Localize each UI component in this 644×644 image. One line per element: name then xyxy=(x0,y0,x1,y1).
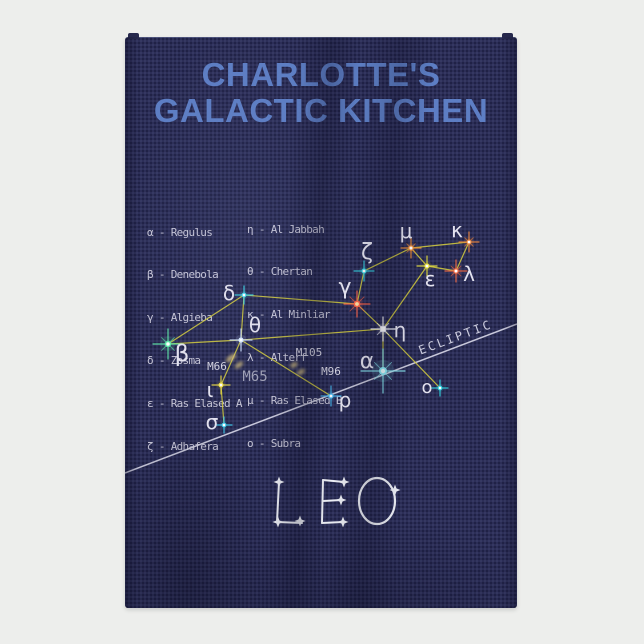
star-label-gamma: γ xyxy=(338,275,351,300)
star-delta xyxy=(235,286,253,304)
messier-label-M66: M66 xyxy=(207,360,227,373)
star-label-sigma: σ xyxy=(206,410,219,434)
messier-label-M105: M105 xyxy=(296,346,323,359)
galaxy-blob-2 xyxy=(289,361,298,369)
star-label-eta: η xyxy=(394,318,407,342)
kitchen-towel: CHARLOTTE'S GALACTIC KITCHEN α - Regulus… xyxy=(125,37,517,608)
messier-label-M96: M96 xyxy=(321,365,341,378)
line-mu-kappa xyxy=(411,242,469,248)
star-label-delta: δ xyxy=(223,281,235,305)
messier-label-M65: M65 xyxy=(242,369,267,385)
star-sigma xyxy=(216,417,232,433)
star-label-mu: μ xyxy=(400,219,413,243)
star-iota xyxy=(212,376,230,394)
star-label-iota: ι xyxy=(207,378,214,402)
star-label-omicron: o xyxy=(421,377,432,398)
leo-wordmark xyxy=(273,477,401,528)
star-label-epsilon: ε xyxy=(425,267,436,291)
line-theta-eta xyxy=(241,329,383,340)
star-label-alpha: α xyxy=(360,349,375,374)
product-photo: { "product": { "background_color": "#ede… xyxy=(0,0,644,644)
star-label-lambda: λ xyxy=(463,262,475,286)
star-label-beta: β xyxy=(175,341,190,367)
star-label-kappa: κ xyxy=(451,218,463,242)
star-label-theta: θ xyxy=(249,313,261,337)
constellation-svg: ECLIPTICαβγδεζηθικλμoρσM66M65M105M96 xyxy=(125,37,517,608)
star-label-rho: ρ xyxy=(339,388,352,412)
star-label-zeta: ζ xyxy=(361,240,373,265)
